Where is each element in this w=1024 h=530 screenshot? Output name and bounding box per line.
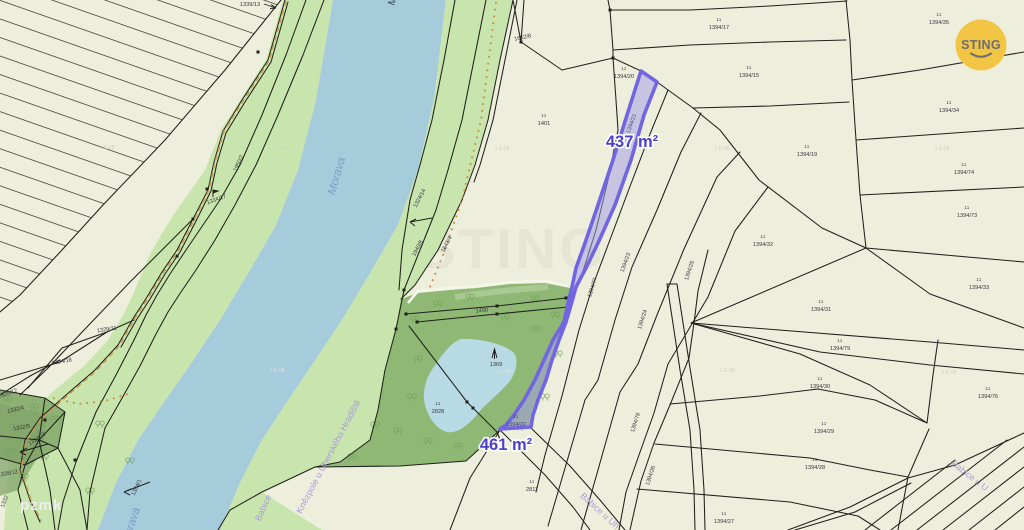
svg-text:1394/76: 1394/76 xyxy=(978,394,998,400)
svg-text:1 É-08: 1 É-08 xyxy=(495,145,510,152)
svg-text:2811: 2811 xyxy=(526,487,538,493)
svg-text:11: 11 xyxy=(817,376,822,381)
svg-text:1 É-08: 1 É-08 xyxy=(100,144,115,151)
svg-text:1394/32: 1394/32 xyxy=(753,242,773,248)
svg-text:pzmk: pzmk xyxy=(20,497,62,514)
svg-text:1394/28: 1394/28 xyxy=(805,465,825,471)
svg-text:1 É-08: 1 É-08 xyxy=(273,145,288,152)
svg-text:1394/30: 1394/30 xyxy=(810,384,830,390)
svg-text:STING: STING xyxy=(961,38,1001,52)
svg-text:11: 11 xyxy=(746,65,751,70)
svg-text:1394/17: 1394/17 xyxy=(709,25,729,31)
svg-text:11: 11 xyxy=(837,338,842,343)
svg-text:1 É-08: 1 É-08 xyxy=(935,145,950,152)
svg-text:1394/19: 1394/19 xyxy=(797,152,817,158)
svg-text:1394/33: 1394/33 xyxy=(969,285,989,291)
svg-text:11: 11 xyxy=(760,234,765,239)
svg-text:11: 11 xyxy=(976,277,981,282)
svg-text:1 É-08: 1 É-08 xyxy=(942,369,957,376)
svg-text:1 É-08: 1 É-08 xyxy=(497,368,512,375)
svg-text:11: 11 xyxy=(721,511,726,516)
svg-text:11: 11 xyxy=(716,17,721,22)
svg-text:11: 11 xyxy=(804,144,809,149)
svg-text:1400: 1400 xyxy=(475,307,488,314)
svg-text:1394/29: 1394/29 xyxy=(814,429,834,435)
svg-text:1394/74: 1394/74 xyxy=(954,170,974,176)
svg-text:11: 11 xyxy=(946,100,951,105)
svg-text:1394/34: 1394/34 xyxy=(939,108,959,114)
svg-text:11: 11 xyxy=(812,457,817,462)
svg-text:11: 11 xyxy=(964,205,969,210)
svg-text:11: 11 xyxy=(513,414,518,419)
svg-text:461 m²: 461 m² xyxy=(480,436,533,454)
svg-text:11: 11 xyxy=(621,66,626,71)
svg-text:1401: 1401 xyxy=(538,121,550,127)
svg-text:7-É-08: 7-É-08 xyxy=(269,367,284,374)
svg-text:1394/22: 1394/22 xyxy=(506,422,526,428)
svg-text:1394/35: 1394/35 xyxy=(929,20,949,26)
svg-text:1369: 1369 xyxy=(490,362,502,368)
svg-text:11: 11 xyxy=(821,421,826,426)
svg-text:1 É-08: 1 É-08 xyxy=(715,145,730,152)
svg-text:1339/13: 1339/13 xyxy=(240,2,260,8)
svg-text:11: 11 xyxy=(985,386,990,391)
svg-text:11: 11 xyxy=(541,113,546,118)
svg-text:11: 11 xyxy=(961,162,966,167)
svg-text:2828: 2828 xyxy=(432,409,444,415)
svg-text:11: 11 xyxy=(435,401,440,406)
svg-text:1394/27: 1394/27 xyxy=(714,519,734,525)
svg-text:1 É-08: 1 É-08 xyxy=(720,367,735,374)
svg-text:11: 11 xyxy=(818,299,823,304)
svg-text:1394/20: 1394/20 xyxy=(614,74,634,80)
svg-text:1394/73: 1394/73 xyxy=(957,213,977,219)
svg-text:11: 11 xyxy=(936,12,941,17)
svg-text:1394/79: 1394/79 xyxy=(830,346,850,352)
svg-text:437 m²: 437 m² xyxy=(606,133,659,151)
svg-text:1394/31: 1394/31 xyxy=(811,307,831,313)
svg-text:1394/15: 1394/15 xyxy=(739,73,759,79)
svg-text:11: 11 xyxy=(529,479,534,484)
